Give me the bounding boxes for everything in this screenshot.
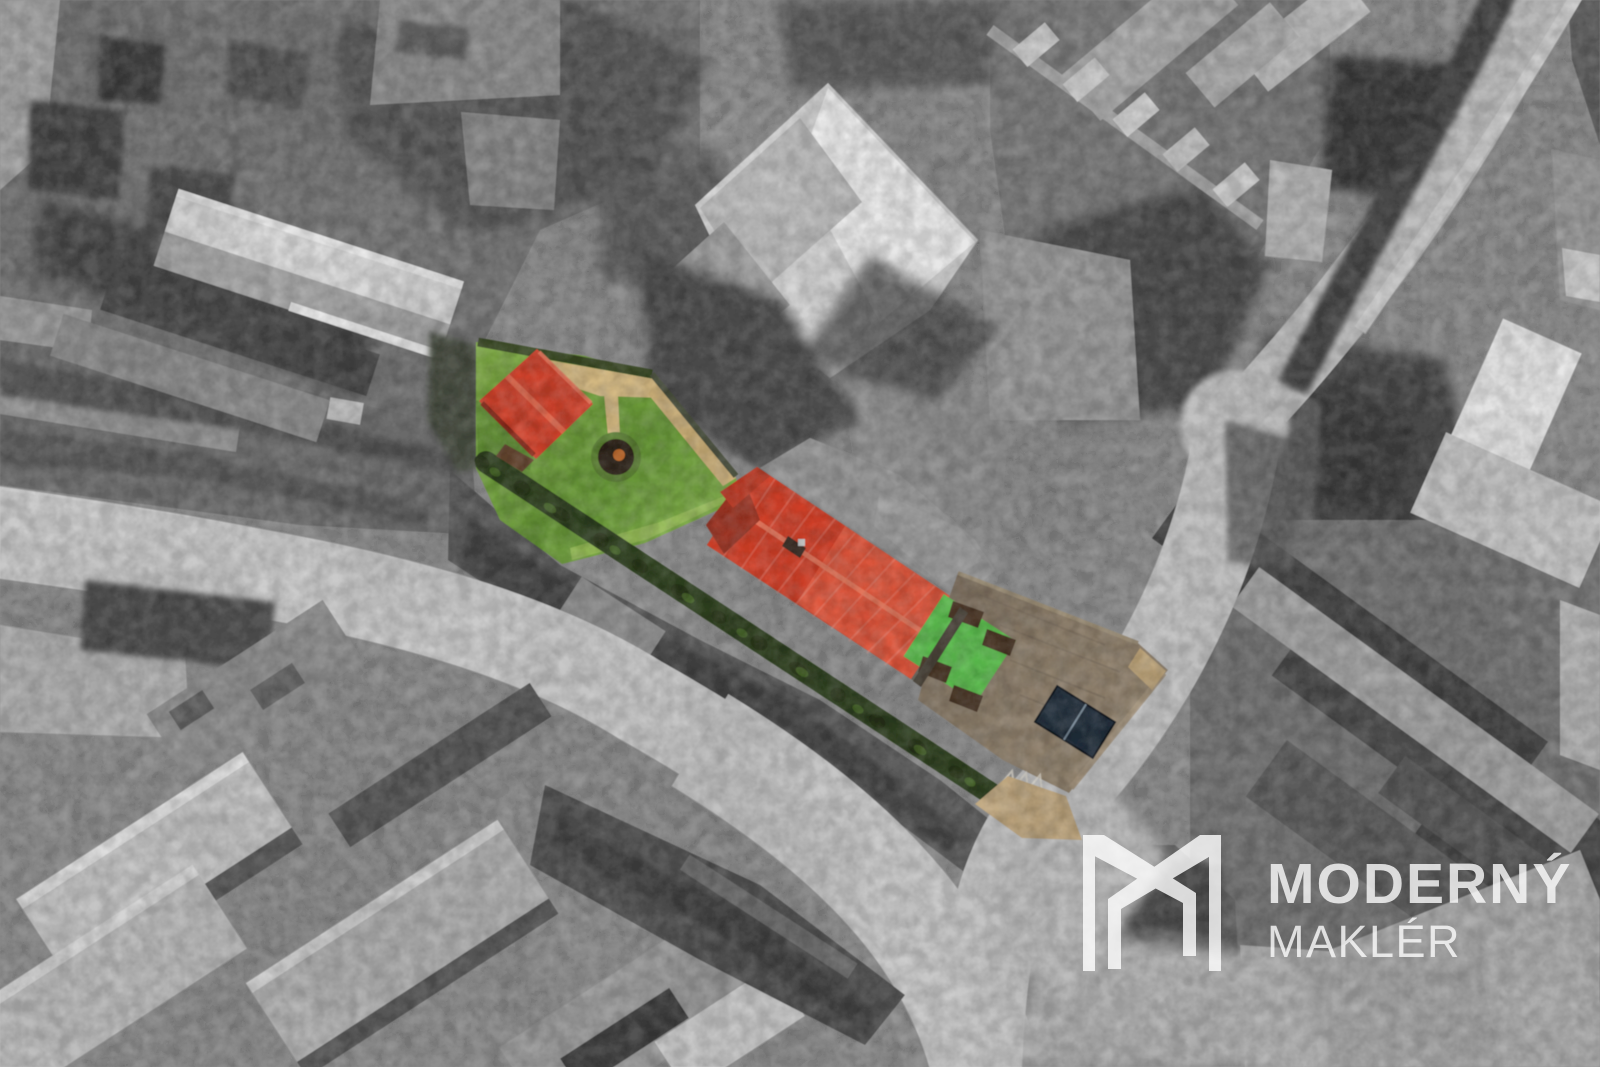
svg-text:MAKLÉR: MAKLÉR — [1267, 916, 1461, 967]
svg-text:MODERNÝ: MODERNÝ — [1267, 851, 1572, 916]
